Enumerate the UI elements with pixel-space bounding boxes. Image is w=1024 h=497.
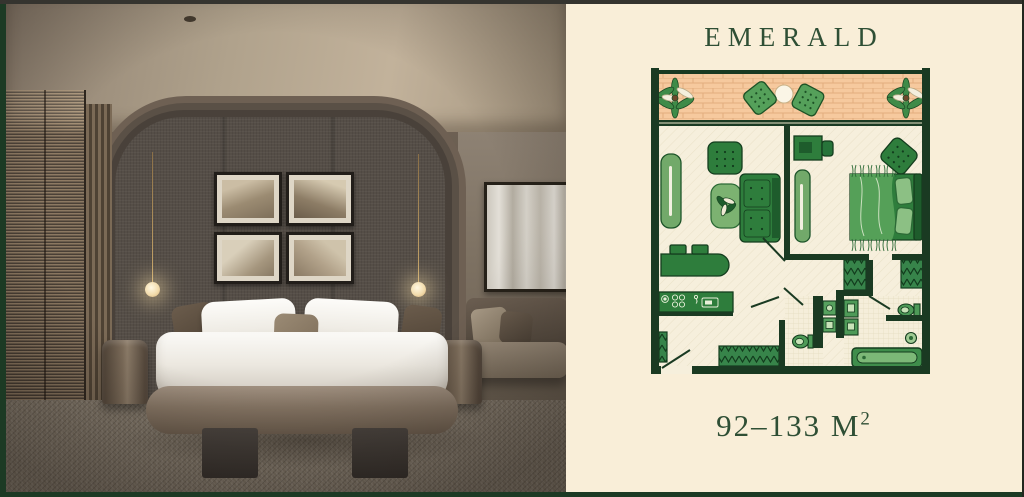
- wall-picture-frame: [286, 172, 354, 226]
- landscape-art: [222, 240, 274, 276]
- side-table: [102, 340, 148, 404]
- toilet-bath: [898, 304, 920, 316]
- apartment-info-panel: EMERALD: [566, 4, 1022, 492]
- blinds-divider: [44, 90, 46, 430]
- bed-upholstered-base: [146, 386, 458, 434]
- apartment-name-title: EMERALD: [566, 22, 1022, 53]
- pendant-light-globe: [145, 282, 160, 297]
- balcony-table: [775, 85, 793, 103]
- hallway-wardrobe: [719, 346, 779, 366]
- wardrobe: [901, 260, 924, 288]
- pendant-wire: [152, 152, 153, 284]
- kitchen-island: [661, 254, 729, 276]
- desk-chair: [822, 141, 833, 156]
- bed-pillow: [895, 207, 914, 235]
- bed-pillow: [895, 177, 914, 205]
- stool: [670, 245, 686, 254]
- floorplan-illustration: [648, 68, 940, 384]
- closet: [659, 332, 667, 362]
- wall-picture-frame: [214, 232, 282, 284]
- bed-leg: [352, 428, 408, 478]
- area-value: 92–133 M: [716, 408, 860, 443]
- headboard: [914, 174, 922, 240]
- pendant-wire: [418, 154, 419, 284]
- daybed-pillow: [499, 311, 534, 346]
- apartment-card: EMERALD: [0, 0, 1024, 497]
- landscape-art: [294, 240, 346, 276]
- toilet-wc: [793, 335, 814, 348]
- ceiling-spotlight: [184, 16, 196, 22]
- abstract-art-canvas: [484, 182, 566, 292]
- top-frame-bar: [0, 0, 1024, 4]
- landscape-art: [222, 180, 274, 218]
- shower-drain: [906, 333, 917, 344]
- bed-leg: [202, 428, 258, 478]
- wardrobe: [844, 260, 866, 290]
- wall-picture-frame: [286, 232, 354, 284]
- area-superscript: 2: [860, 409, 872, 430]
- bed: [850, 165, 922, 251]
- kitchen-counter: [659, 292, 733, 316]
- pendant-light-globe: [411, 282, 426, 297]
- window-blinds: [6, 90, 86, 430]
- bathtub: [852, 348, 922, 367]
- bedroom-photo: [6, 4, 566, 492]
- wall-picture-frame: [214, 172, 282, 226]
- stool: [692, 245, 708, 254]
- area-range-label: 92–133 M2: [566, 408, 1022, 444]
- landscape-art: [294, 180, 346, 218]
